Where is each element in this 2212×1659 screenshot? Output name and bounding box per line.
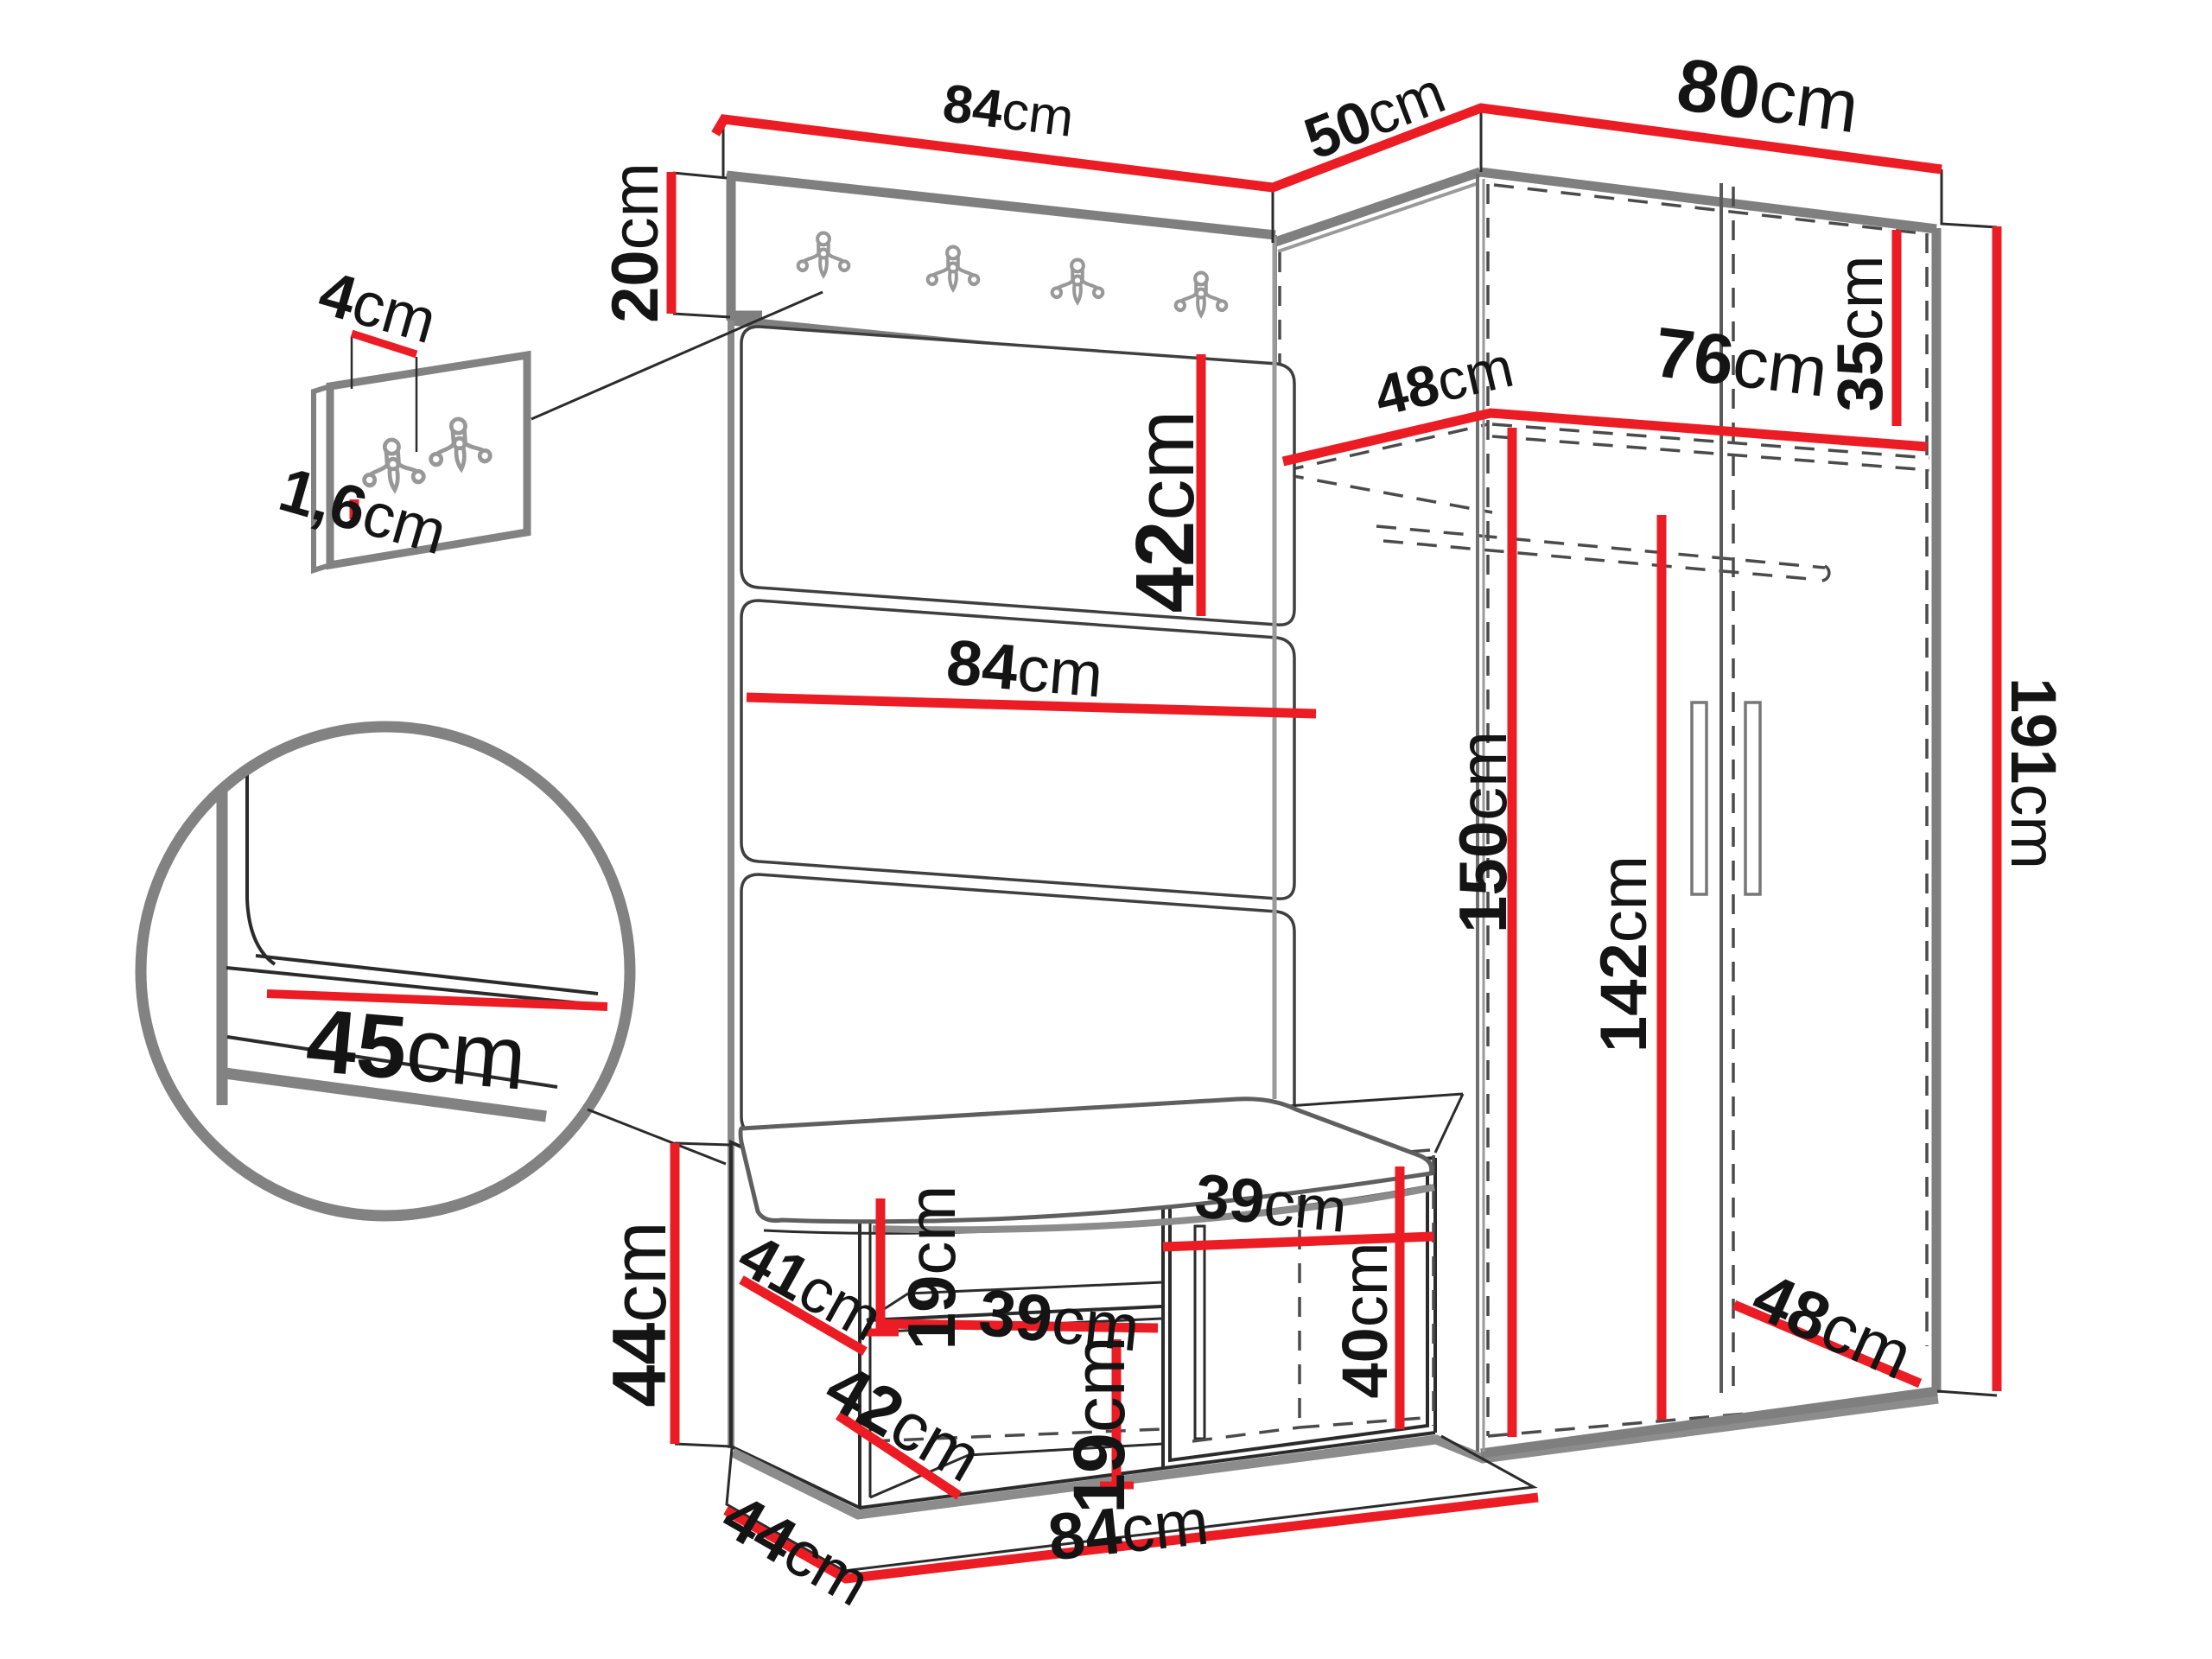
svg-text:19cm: 19cm <box>1058 1336 1140 1513</box>
svg-text:35cm: 35cm <box>1824 256 1896 412</box>
svg-text:20cm: 20cm <box>599 162 672 323</box>
svg-text:19cm: 19cm <box>893 1185 969 1351</box>
svg-text:45cm: 45cm <box>302 990 530 1109</box>
svg-text:150cm: 150cm <box>1445 731 1521 933</box>
svg-text:191cm: 191cm <box>1999 677 2070 869</box>
svg-text:44cm: 44cm <box>596 1221 682 1407</box>
svg-text:40cm: 40cm <box>1329 1243 1401 1399</box>
svg-text:142cm: 142cm <box>1587 855 1661 1052</box>
svg-text:42cm: 42cm <box>1119 410 1211 613</box>
svg-text:84cm: 84cm <box>944 626 1106 710</box>
